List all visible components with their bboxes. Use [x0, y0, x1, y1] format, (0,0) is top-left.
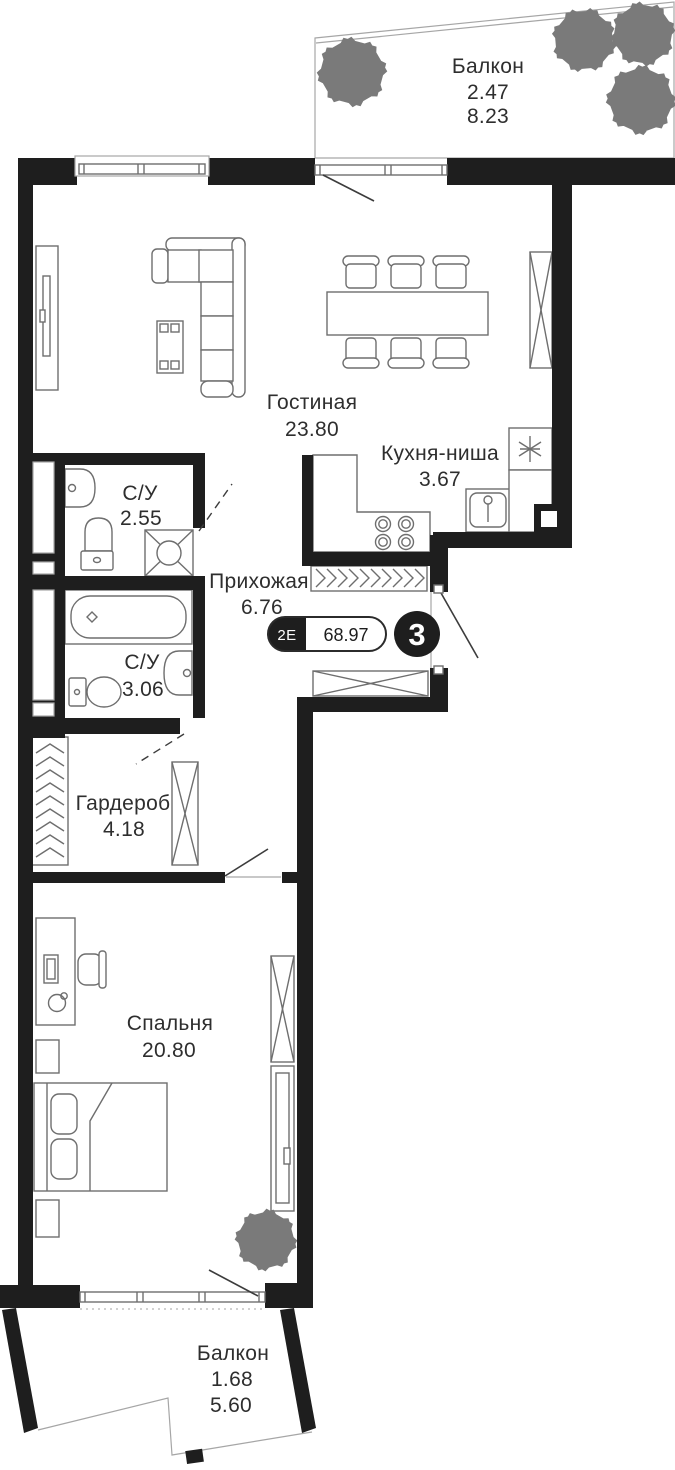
wall-segment	[18, 158, 33, 1308]
toilet-icon	[69, 677, 121, 707]
wall-segment	[54, 453, 65, 738]
room-area-coeff: 1.68	[211, 1368, 253, 1391]
nightstand	[36, 1200, 59, 1237]
bedroom-cabinet	[271, 1066, 294, 1211]
kitchen-sink	[466, 489, 510, 532]
wall-segment	[302, 552, 432, 566]
door-swing	[441, 593, 478, 658]
shower-icon	[145, 530, 193, 576]
tv-stand	[36, 246, 58, 390]
room-area-full: 5.60	[210, 1394, 252, 1417]
room-name: Кухня-ниша	[381, 442, 499, 465]
wall-segment	[298, 697, 446, 712]
dining-chair	[388, 338, 424, 368]
room-area-full: 8.23	[467, 105, 509, 128]
total-area: 68.97	[323, 625, 368, 645]
unit-badge: 2Е 68.97 3	[268, 611, 440, 657]
room-name: Гостиная	[267, 391, 358, 414]
door-swing	[323, 175, 374, 201]
wall-segment	[208, 158, 315, 185]
wall-segment	[302, 455, 313, 558]
wall-segment	[265, 1283, 313, 1308]
room-area: 3.67	[419, 468, 461, 491]
wall-segment	[297, 697, 313, 1308]
wall-segment	[280, 1308, 316, 1433]
star-decoration-icon	[605, 64, 675, 136]
room-area-coeff: 2.47	[467, 81, 509, 104]
wall-segment	[185, 1449, 204, 1464]
wardrobe-closet	[172, 762, 198, 865]
dining-table-set	[327, 256, 488, 368]
dining-chair	[433, 256, 469, 288]
room-area: 3.06	[122, 678, 164, 701]
wall-segment	[0, 1285, 80, 1308]
room-area: 2.55	[120, 507, 162, 530]
room-area: 6.76	[241, 596, 283, 619]
coffee-table	[157, 321, 183, 373]
dining-chair	[343, 256, 379, 288]
wall-segment	[33, 718, 180, 734]
wall-segment	[18, 872, 225, 883]
balcony-door-top	[315, 165, 447, 201]
room-name: Балкон	[197, 1342, 269, 1365]
room-name: С/У	[124, 651, 160, 674]
wall-segment	[33, 576, 205, 590]
bedroom-closet	[271, 956, 294, 1062]
wardrobe-rack	[32, 737, 68, 865]
room-label-bedroom: Спальня 20.80	[127, 1012, 213, 1062]
room-label-hallway: Прихожая 6.76	[209, 570, 309, 619]
hallway-shoe-rack	[311, 566, 427, 591]
room-label-kitchen: Кухня-ниша 3.67	[381, 442, 499, 491]
desk	[36, 918, 106, 1025]
wall-segment	[433, 532, 572, 548]
bed	[34, 1083, 167, 1191]
wall-segment	[447, 158, 675, 185]
bedroom-door	[225, 849, 281, 877]
bathroom-large-door-swing	[136, 734, 184, 764]
room-area: 23.80	[285, 418, 339, 441]
room-name: С/У	[122, 482, 158, 505]
room-area: 20.80	[142, 1039, 196, 1062]
wall-segment	[2, 1308, 38, 1433]
door-swing	[225, 849, 268, 876]
dining-chair	[343, 338, 379, 368]
bathtub-icon	[65, 590, 192, 644]
wall-segment	[33, 453, 205, 465]
nightstand	[36, 1040, 59, 1073]
wall-segment	[193, 453, 205, 528]
balcony-bottom: Балкон 1.68 5.60	[2, 1308, 316, 1464]
star-decoration-icon	[614, 5, 672, 63]
room-label-bathroom-small: С/У 2.55	[120, 482, 162, 530]
star-decoration-icon	[233, 1207, 299, 1273]
balcony-door-bottom	[80, 1270, 265, 1309]
sink-icon	[65, 469, 95, 507]
toilet-icon	[81, 518, 113, 570]
dining-table	[327, 292, 488, 335]
room-label-balcony-top: Балкон 2.47 8.23	[452, 55, 524, 128]
shaft-inner	[541, 511, 557, 527]
unit-number: 3	[408, 617, 425, 652]
star-decoration-icon	[319, 39, 385, 105]
wall-segment	[282, 872, 313, 883]
room-label-living: Гостиная 23.80	[267, 391, 358, 441]
hallway-closet	[313, 671, 428, 696]
balcony-top: Балкон 2.47 8.23	[315, 2, 675, 158]
dining-chair	[433, 338, 469, 368]
kitchen-counter	[313, 455, 430, 552]
room-name: Балкон	[452, 55, 524, 78]
room-name: Спальня	[127, 1012, 213, 1035]
wardrobe-cabinet	[530, 252, 552, 368]
dining-chair	[388, 256, 424, 288]
star-decoration-icon	[549, 5, 619, 75]
desk-chair	[78, 951, 106, 988]
window-living	[75, 156, 209, 176]
wall-segment	[552, 185, 572, 532]
room-name: Прихожая	[209, 570, 309, 593]
wall-segment	[430, 535, 448, 592]
room-label-balcony-bottom: Балкон 1.68 5.60	[197, 1342, 269, 1417]
layout-code: 2Е	[277, 627, 296, 644]
room-name: Гардероб	[76, 792, 171, 815]
sink-icon	[164, 651, 192, 695]
room-area: 4.18	[103, 818, 145, 841]
room-label-bathroom-large: С/У 3.06	[122, 651, 164, 701]
wall-segment	[193, 590, 205, 718]
floor-plan: Балкон 2.47 8.23 Балкон 1.68 5.60	[0, 0, 675, 1470]
room-label-wardrobe: Гардероб 4.18	[76, 792, 171, 841]
